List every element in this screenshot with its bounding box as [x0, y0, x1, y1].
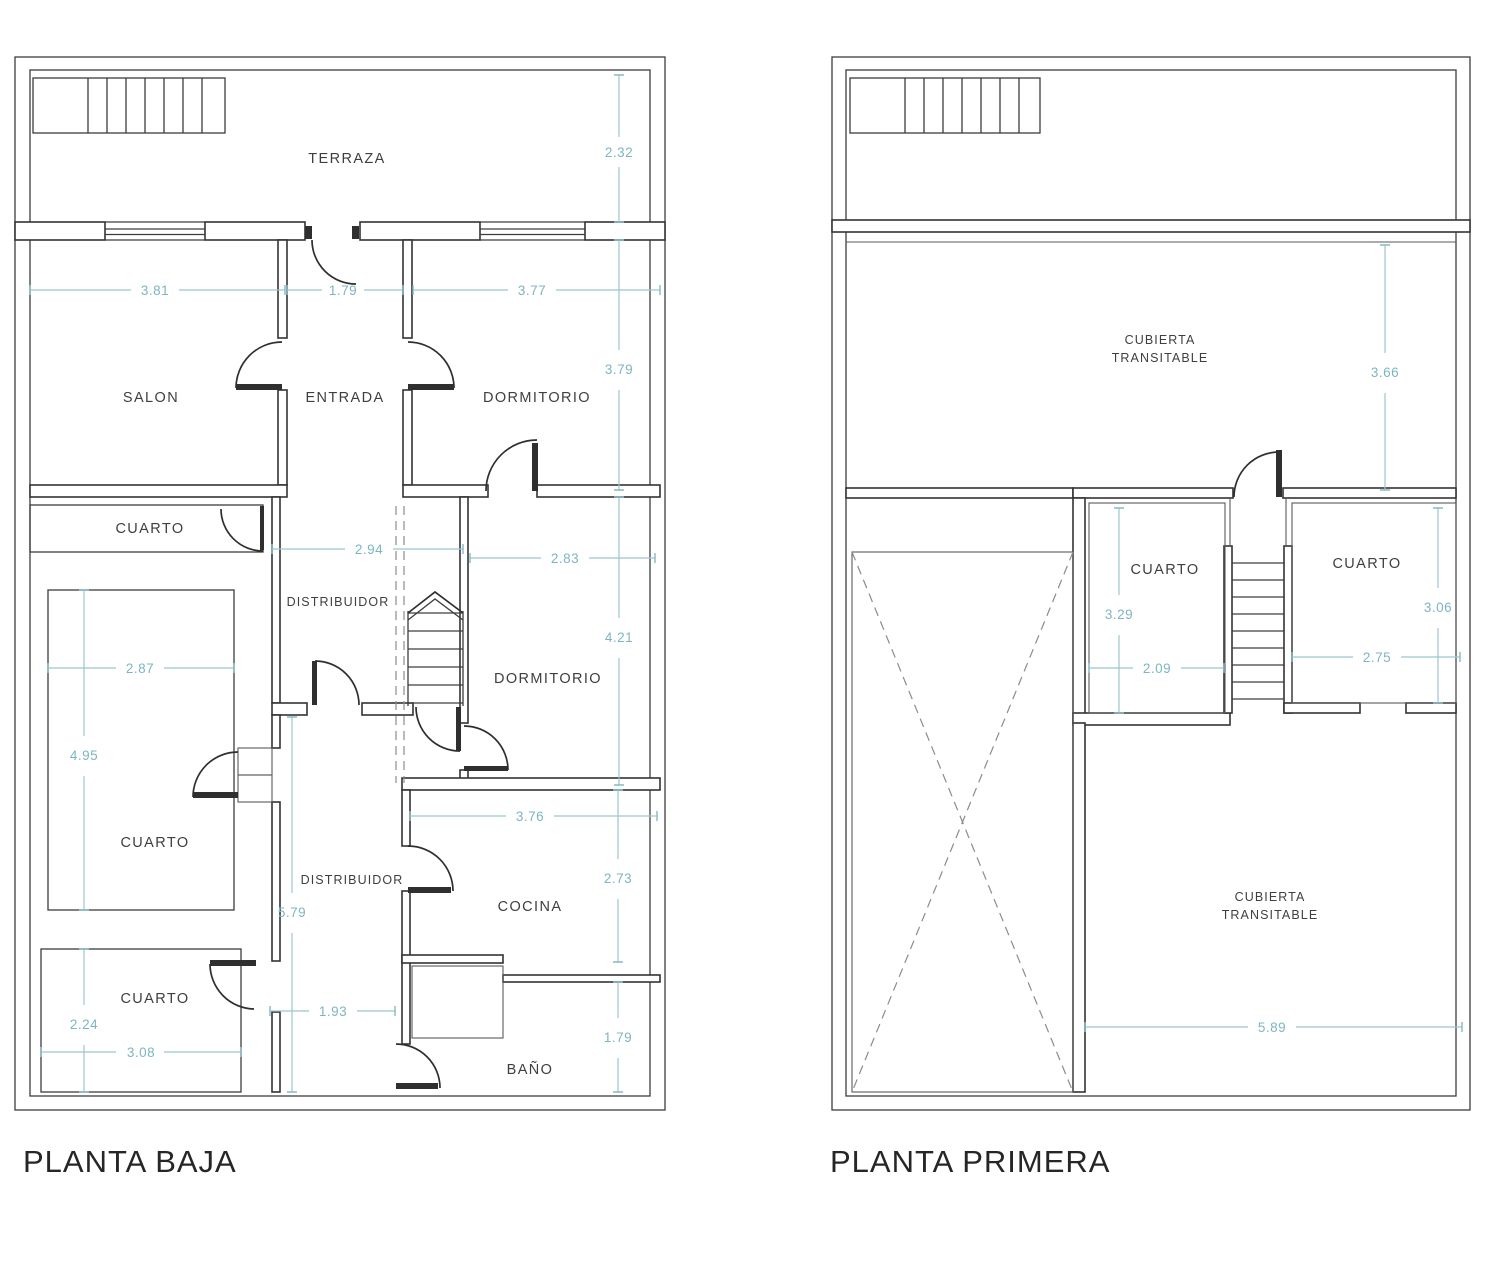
- door-leaf: [236, 384, 282, 390]
- room-label-distribuidor2: DISTRIBUIDOR: [301, 873, 404, 887]
- room-label-cubierta-bottom-line1: CUBIERTA: [1235, 890, 1306, 904]
- door-leaf: [464, 766, 508, 771]
- mid-wall: [846, 488, 1456, 498]
- terraza-stairs-icon: [850, 78, 1040, 133]
- floor-plan-drawing: 2.32 3.81 1.79 3.77 3.79 2.94 2.83 4.21 …: [0, 0, 1500, 1275]
- dim-cocina-w: 3.76: [516, 809, 544, 824]
- door-jamb: [305, 226, 312, 239]
- plan-planta-primera: 3.66 3.29 2.09 3.06 2.75 5.89 CUBIERTA T…: [830, 57, 1470, 1179]
- dim-cuarto-left-w: 2.09: [1143, 661, 1171, 676]
- dimension-lines: [30, 75, 660, 1092]
- dormitorio2-door-arc: [464, 726, 508, 770]
- door-leaf: [1276, 450, 1282, 497]
- dim-bano-h: 1.79: [604, 1030, 632, 1045]
- facade-wall: [15, 222, 665, 284]
- cubierta-door-arc: [1234, 452, 1279, 497]
- cuarto-small-door-arc: [210, 964, 254, 1009]
- dim-pasillo-w: 1.93: [319, 1004, 347, 1019]
- dim-cuarto-left-h: 3.29: [1105, 607, 1133, 622]
- room-label-cuarto-right: CUARTO: [1332, 556, 1401, 572]
- room-label-entrada: ENTRADA: [305, 390, 384, 406]
- door-leaf: [312, 661, 317, 705]
- cuarto-big-steps: [238, 748, 272, 802]
- room-label-dormitorio1: DORMITORIO: [483, 390, 591, 406]
- dim-salon-w: 3.81: [141, 283, 169, 298]
- stairs-door-arc: [416, 707, 460, 751]
- dim-terraza-h: 2.32: [605, 145, 633, 160]
- dim-dorm1-h: 3.79: [605, 362, 633, 377]
- outer-wall: [15, 57, 665, 1110]
- dormitorio-door-arc: [408, 342, 454, 388]
- dim-dorm2-w: 2.83: [551, 551, 579, 566]
- cuarto-big-door-arc: [193, 752, 238, 797]
- room-label-cuarto-small: CUARTO: [120, 991, 189, 1007]
- door-leaf: [193, 792, 238, 798]
- plan-planta-baja: 2.32 3.81 1.79 3.77 3.79 2.94 2.83 4.21 …: [15, 57, 665, 1179]
- dim-entrada-w: 1.79: [329, 283, 357, 298]
- room-label-cocina: COCINA: [498, 899, 563, 915]
- void-cross-lines: [852, 552, 1073, 1092]
- cubierta-divider-wall: [1073, 723, 1085, 1092]
- floor-plan-sheet: 2.32 3.81 1.79 3.77 3.79 2.94 2.83 4.21 …: [0, 0, 1500, 1275]
- dim-cuarto-small-w: 3.08: [127, 1045, 155, 1060]
- dim-distr2-h: 5.79: [278, 905, 306, 920]
- dim-distr1-w: 2.94: [355, 542, 383, 557]
- salon-door-arc: [236, 342, 282, 388]
- outer-wall: [832, 57, 1470, 1110]
- door-leaf: [408, 384, 454, 390]
- room-label-terraza: TERRAZA: [308, 151, 385, 167]
- plan-title-baja: PLANTA BAJA: [23, 1144, 237, 1179]
- room-label-cuarto-strip: CUARTO: [115, 521, 184, 537]
- corridor-door-arc: [315, 661, 359, 705]
- entrance-door-arc: [312, 240, 356, 284]
- stairs-icon: [408, 592, 463, 706]
- room-label-dormitorio2: DORMITORIO: [494, 671, 602, 687]
- door-leaf: [408, 887, 451, 893]
- door-leaf: [260, 506, 264, 550]
- stairs-icon: [1232, 563, 1284, 699]
- dim-dorm2-h: 4.21: [605, 630, 633, 645]
- door-leaf: [456, 707, 461, 751]
- room-label-bano: BAÑO: [507, 1061, 554, 1078]
- interior-walls-top: [30, 240, 660, 497]
- plan-title-primera: PLANTA PRIMERA: [830, 1144, 1110, 1179]
- door-leaf: [532, 443, 538, 491]
- dim-cocina-h: 2.73: [604, 871, 632, 886]
- cocina-door-arc: [408, 846, 453, 891]
- dim-cuarto-big-h: 4.95: [70, 748, 98, 763]
- dim-cuarto-small-h: 2.24: [70, 1017, 98, 1032]
- terraza-stairs-icon: [33, 78, 225, 133]
- door-leaf: [210, 960, 256, 966]
- dim-cuarto-right-h: 3.06: [1424, 600, 1452, 615]
- corridor-walls: [272, 497, 660, 1092]
- section-line: [396, 506, 404, 783]
- dim-cubierta-bottom-w: 5.89: [1258, 1020, 1286, 1035]
- room-label-cubierta-bottom-line2: TRANSITABLE: [1222, 908, 1319, 922]
- door-leaf: [396, 1083, 438, 1089]
- room-label-cubierta-top-line2: TRANSITABLE: [1112, 351, 1209, 365]
- dim-dorm1-w: 3.77: [518, 283, 546, 298]
- room-label-distribuidor1: DISTRIBUIDOR: [287, 595, 390, 609]
- window-icon: [105, 222, 205, 240]
- room-label-cuarto-left: CUARTO: [1130, 562, 1199, 578]
- window-icon: [480, 222, 585, 240]
- dimension-ticks: [30, 75, 660, 1092]
- room-label-cubierta-top-line1: CUBIERTA: [1125, 333, 1196, 347]
- door-jamb: [352, 226, 359, 239]
- dim-cuarto-big-w: 2.87: [126, 661, 154, 676]
- bano-door-arc: [396, 1044, 440, 1088]
- dim-cuarto-right-w: 2.75: [1363, 650, 1391, 665]
- room-label-cuarto-big: CUARTO: [120, 835, 189, 851]
- dormitorio-hall-door-arc: [486, 440, 537, 491]
- room-label-salon: SALON: [123, 390, 179, 406]
- facade-wall: [832, 220, 1470, 232]
- bano-closet: [412, 966, 503, 1038]
- inner-wall-face: [30, 70, 650, 1096]
- cuarto-strip-door-arc: [221, 509, 263, 551]
- dim-cubierta-top-h: 3.66: [1371, 365, 1399, 380]
